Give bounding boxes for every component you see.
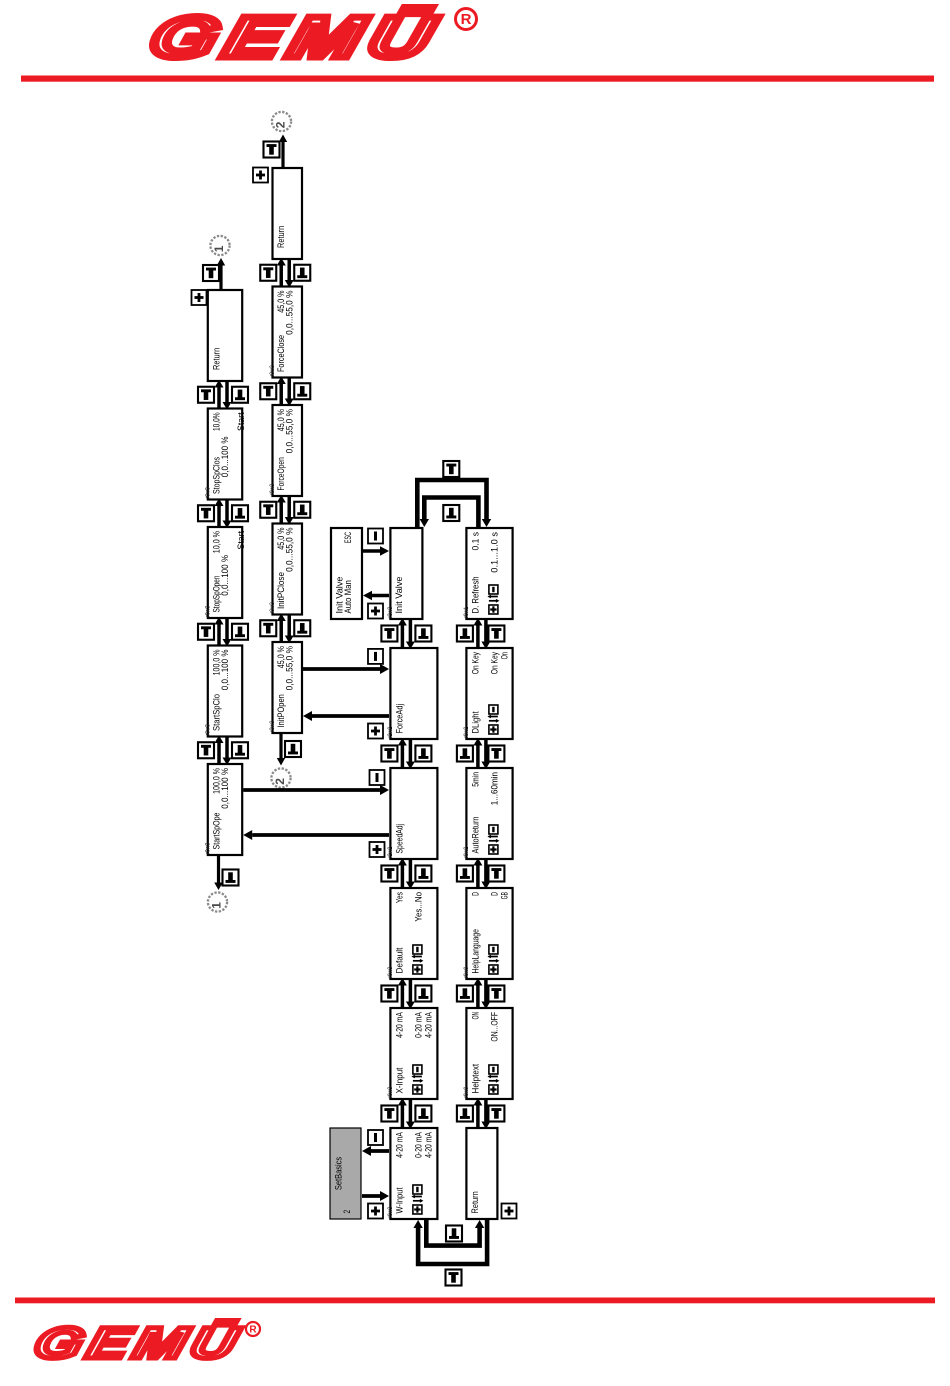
svg-text:Start: Start bbox=[236, 531, 247, 550]
svg-text:D: D bbox=[470, 892, 481, 896]
svg-text:0.1 s: 0.1 s bbox=[470, 532, 481, 551]
svg-text:1: 1 bbox=[212, 245, 226, 252]
svg-text:r2w2: r2w2 bbox=[387, 846, 394, 858]
svg-text:X-Input: X-Input bbox=[394, 1067, 405, 1093]
svg-text:5min: 5min bbox=[470, 772, 481, 787]
svg-text:0,0...55,0 %: 0,0...55,0 % bbox=[285, 409, 296, 454]
svg-text:DLight: DLight bbox=[470, 711, 481, 733]
svg-text:GEMÜ: GEMÜ bbox=[142, 4, 449, 70]
svg-text:10,0 %: 10,0 % bbox=[211, 531, 222, 554]
svg-text:StartSpOpe: StartSpOpe bbox=[211, 813, 222, 850]
svg-text:R: R bbox=[461, 11, 472, 28]
svg-text:r0w3: r0w3 bbox=[204, 605, 211, 617]
svg-text:r0w3: r0w3 bbox=[204, 842, 211, 854]
svg-text:Start: Start bbox=[236, 412, 247, 431]
svg-text:GB: GB bbox=[499, 892, 510, 899]
svg-text:r0w3: r0w3 bbox=[387, 1206, 394, 1218]
svg-text:Default: Default bbox=[394, 947, 405, 973]
svg-text:Init Valve: Init Valve bbox=[394, 577, 405, 614]
svg-text:ForceAdj: ForceAdj bbox=[394, 704, 405, 734]
svg-text:0,0...55,0 %: 0,0...55,0 % bbox=[285, 646, 296, 691]
svg-text:r0w0: r0w0 bbox=[463, 966, 470, 978]
svg-text:0,0...55,0 %: 0,0...55,0 % bbox=[285, 527, 296, 572]
svg-text:0,0...100 %: 0,0...100 % bbox=[220, 649, 231, 690]
svg-text:r0w3: r0w3 bbox=[204, 724, 211, 736]
svg-text:r0w3: r0w3 bbox=[269, 602, 276, 614]
svg-text:ForceOpen: ForceOpen bbox=[276, 457, 287, 490]
svg-text:r0w3: r0w3 bbox=[269, 365, 276, 377]
svg-text:0,0...100 %: 0,0...100 % bbox=[220, 436, 231, 477]
svg-text:r0w1: r0w1 bbox=[463, 606, 470, 618]
svg-text:0,0...100 %: 0,0...100 % bbox=[220, 768, 231, 809]
svg-text:2: 2 bbox=[274, 121, 288, 128]
svg-text:On Key: On Key bbox=[470, 652, 481, 674]
svg-text:Auto Man: Auto Man bbox=[343, 580, 354, 613]
svg-text:4-20 mA: 4-20 mA bbox=[394, 1132, 405, 1158]
svg-text:0,0...100 %: 0,0...100 % bbox=[220, 555, 231, 596]
svg-text:r3w3: r3w3 bbox=[269, 720, 276, 732]
svg-text:InitPClose: InitPClose bbox=[276, 572, 287, 609]
svg-text:R: R bbox=[249, 1325, 257, 1336]
svg-text:r3w3: r3w3 bbox=[387, 606, 394, 618]
svg-text:Return: Return bbox=[211, 348, 222, 370]
svg-text:StartSpClo: StartSpClo bbox=[211, 694, 222, 731]
svg-text:SpeedAdj: SpeedAdj bbox=[394, 824, 405, 854]
svg-text:Helptext: Helptext bbox=[470, 1064, 481, 1094]
svg-text:r0w3: r0w3 bbox=[387, 966, 394, 978]
svg-text:4-20 mA: 4-20 mA bbox=[423, 1132, 434, 1158]
svg-text:D. Refresh: D. Refresh bbox=[470, 577, 481, 614]
svg-text:HelpLanguage: HelpLanguage bbox=[470, 929, 481, 973]
svg-text:ForceClose: ForceClose bbox=[276, 335, 287, 372]
svg-text:r0w3: r0w3 bbox=[269, 483, 276, 495]
svg-text:2: 2 bbox=[342, 1210, 353, 1214]
svg-text:10,0%: 10,0% bbox=[211, 412, 222, 431]
svg-text:r0w2: r0w2 bbox=[463, 726, 470, 738]
svg-text:ON: ON bbox=[470, 1012, 481, 1019]
svg-text:4-20 mA: 4-20 mA bbox=[423, 1012, 434, 1038]
svg-text:r0w3: r0w3 bbox=[204, 487, 211, 499]
svg-text:Return: Return bbox=[470, 1191, 481, 1213]
svg-text:2: 2 bbox=[273, 778, 287, 785]
svg-text:ESC: ESC bbox=[343, 532, 354, 543]
svg-text:AutoReturn: AutoReturn bbox=[470, 817, 481, 854]
svg-text:Return: Return bbox=[276, 226, 287, 248]
svg-text:1...60min: 1...60min bbox=[489, 772, 500, 805]
svg-text:0.1...1.0 s: 0.1...1.0 s bbox=[489, 532, 500, 573]
svg-text:r0w2: r0w2 bbox=[463, 846, 470, 858]
svg-text:r0w3: r0w3 bbox=[387, 1086, 394, 1098]
svg-text:ON...OFF: ON...OFF bbox=[489, 1012, 500, 1042]
svg-text:GEMÜ: GEMÜ bbox=[28, 1318, 248, 1368]
svg-text:1: 1 bbox=[210, 902, 224, 909]
svg-text:InitPOpen: InitPOpen bbox=[276, 694, 287, 727]
svg-text:W-Input: W-Input bbox=[394, 1187, 405, 1213]
svg-text:r0w0: r0w0 bbox=[463, 1086, 470, 1098]
svg-text:Yes...No: Yes...No bbox=[413, 892, 424, 922]
svg-text:Yes: Yes bbox=[394, 892, 405, 903]
svg-text:On: On bbox=[499, 652, 510, 659]
svg-text:r2w2: r2w2 bbox=[387, 726, 394, 738]
svg-text:0,0...55,0 %: 0,0...55,0 % bbox=[285, 290, 296, 335]
svg-text:4-20 mA: 4-20 mA bbox=[394, 1012, 405, 1038]
svg-text:SetBasics: SetBasics bbox=[334, 1157, 345, 1190]
